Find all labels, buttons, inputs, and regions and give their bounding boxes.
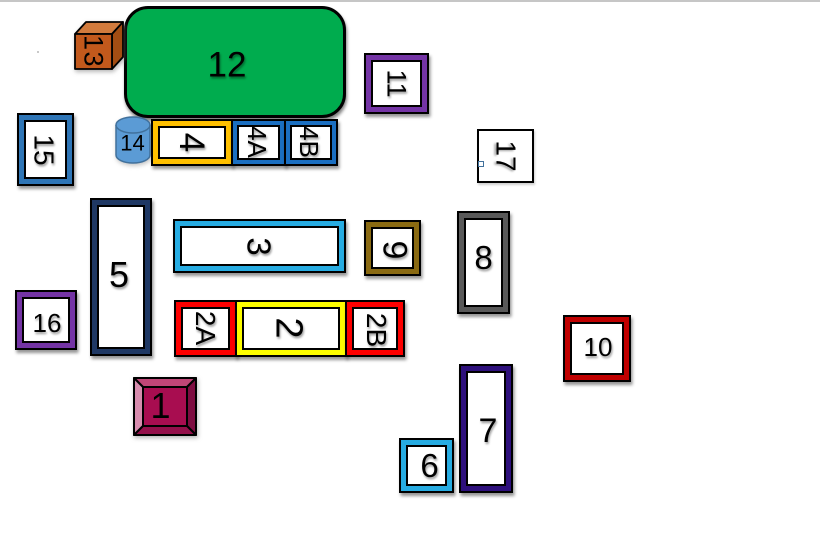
svg-text:1: 1 (150, 385, 170, 426)
svg-text:13: 13 (79, 35, 109, 68)
svg-text:14: 14 (120, 131, 144, 156)
